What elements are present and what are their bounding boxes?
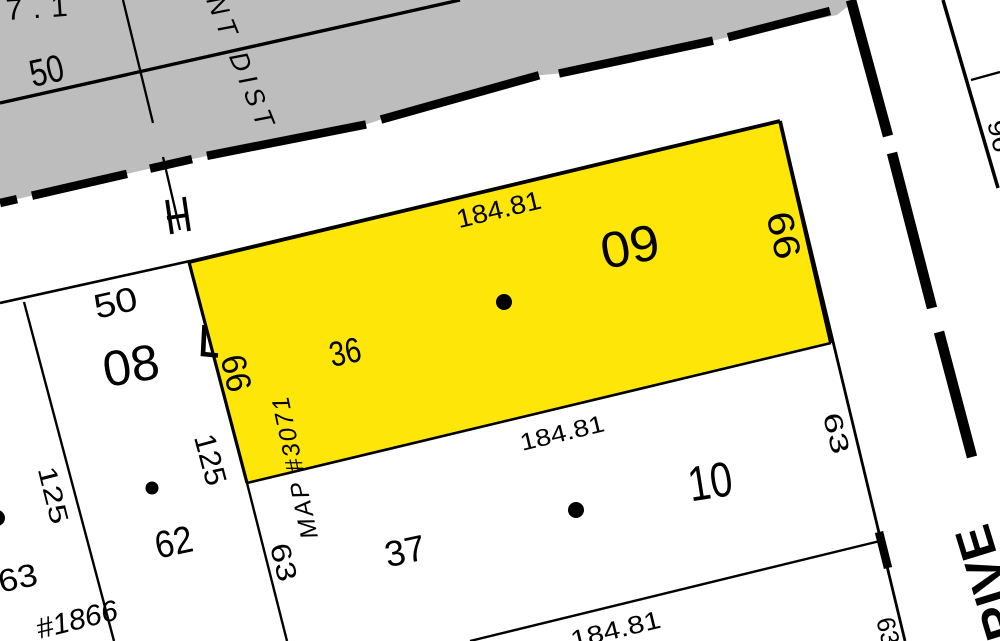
svg-text:09: 09 xyxy=(596,213,665,280)
svg-text:37: 37 xyxy=(381,527,429,576)
svg-text:08: 08 xyxy=(98,333,163,398)
svg-text:10: 10 xyxy=(684,452,736,512)
